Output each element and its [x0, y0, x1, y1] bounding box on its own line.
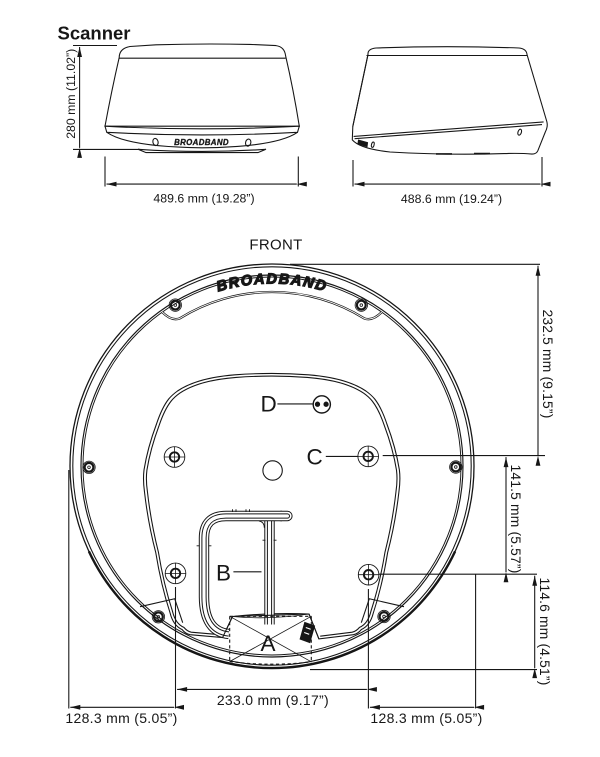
svg-text:280 mm (11.02”): 280 mm (11.02”) — [64, 49, 78, 139]
svg-text:489.6 mm (19.28”): 489.6 mm (19.28”) — [153, 191, 254, 205]
svg-text:128.3 mm (5.05”): 128.3 mm (5.05”) — [65, 710, 177, 726]
svg-text:A: A — [260, 631, 275, 656]
svg-text:114.6 mm (4.51”): 114.6 mm (4.51”) — [537, 578, 552, 686]
svg-text:488.6 mm (19.24”): 488.6 mm (19.24”) — [401, 192, 502, 206]
svg-text:Scanner: Scanner — [58, 23, 131, 44]
svg-text:141.5 mm (5.57”): 141.5 mm (5.57”) — [508, 465, 523, 574]
svg-text:233.0 mm (9.17”): 233.0 mm (9.17”) — [217, 692, 329, 708]
svg-text:B: B — [216, 561, 231, 586]
svg-text:FRONT: FRONT — [249, 237, 302, 254]
svg-text:BROADBAND: BROADBAND — [174, 138, 229, 147]
svg-text:232.5 mm (9.15”): 232.5 mm (9.15”) — [540, 310, 555, 419]
svg-text:128.3 mm (5.05”): 128.3 mm (5.05”) — [370, 710, 482, 726]
svg-text:C: C — [307, 445, 323, 470]
svg-text:D: D — [261, 392, 277, 417]
